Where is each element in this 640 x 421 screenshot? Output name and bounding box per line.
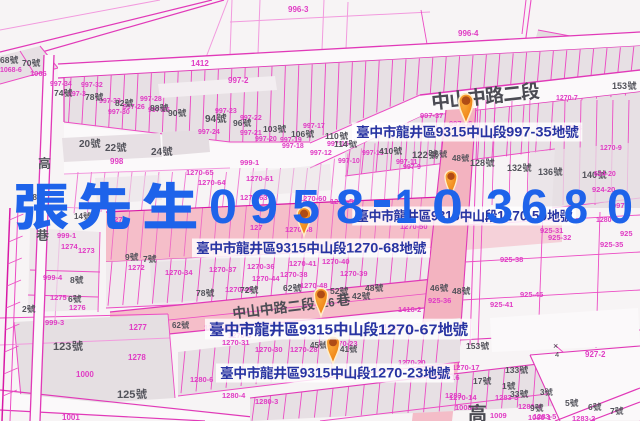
svg-text:1270-37: 1270-37 bbox=[209, 265, 237, 274]
svg-text:925-32: 925-32 bbox=[548, 233, 571, 242]
svg-text:9: 9 bbox=[125, 252, 130, 262]
svg-text:1280-6: 1280-6 bbox=[190, 375, 213, 384]
svg-text:1: 1 bbox=[395, 181, 417, 234]
svg-text:996-3: 996-3 bbox=[288, 5, 309, 14]
svg-text:1270-65: 1270-65 bbox=[186, 168, 214, 177]
svg-text:33: 33 bbox=[510, 389, 520, 399]
svg-text:1270-34: 1270-34 bbox=[165, 268, 193, 277]
svg-text:997-9: 997-9 bbox=[403, 164, 421, 171]
svg-text:997-18: 997-18 bbox=[282, 143, 304, 150]
svg-text:94: 94 bbox=[205, 114, 217, 125]
svg-text:1000: 1000 bbox=[76, 370, 94, 379]
svg-text:68: 68 bbox=[0, 55, 10, 65]
svg-text:1277: 1277 bbox=[129, 323, 147, 332]
svg-text:927-2: 927-2 bbox=[585, 350, 606, 359]
svg-text:999-3: 999-3 bbox=[45, 318, 64, 327]
svg-text:72: 72 bbox=[240, 285, 250, 295]
svg-text:997-28: 997-28 bbox=[140, 96, 162, 103]
svg-text:82: 82 bbox=[115, 98, 125, 108]
svg-text:1416-2: 1416-2 bbox=[398, 305, 421, 314]
svg-text:1412: 1412 bbox=[191, 59, 209, 68]
svg-text:997-35: 997-35 bbox=[506, 125, 552, 140]
svg-text:1283-2: 1283-2 bbox=[572, 414, 595, 421]
svg-text:999-1: 999-1 bbox=[57, 231, 76, 240]
svg-text:1270-67: 1270-67 bbox=[378, 322, 438, 339]
svg-text:1270-39: 1270-39 bbox=[340, 269, 368, 278]
svg-text:925-38: 925-38 bbox=[500, 255, 523, 264]
svg-text:9: 9 bbox=[250, 181, 278, 234]
svg-text:153: 153 bbox=[466, 341, 480, 351]
svg-text:128: 128 bbox=[470, 158, 485, 168]
svg-text:997-10: 997-10 bbox=[338, 158, 360, 165]
svg-text:103: 103 bbox=[263, 124, 277, 134]
svg-text:62: 62 bbox=[283, 283, 293, 293]
svg-text:925-45: 925-45 bbox=[520, 290, 543, 299]
svg-text:1278: 1278 bbox=[128, 353, 146, 362]
svg-text:123: 123 bbox=[53, 341, 71, 353]
svg-text:1066: 1066 bbox=[30, 69, 47, 78]
svg-text:136: 136 bbox=[538, 167, 553, 177]
svg-text:8: 8 bbox=[70, 275, 75, 285]
svg-text:4: 4 bbox=[555, 350, 559, 359]
svg-text:9315: 9315 bbox=[276, 241, 307, 256]
svg-text:9315: 9315 bbox=[436, 125, 467, 140]
svg-text:1280-4: 1280-4 bbox=[222, 391, 246, 400]
svg-text:624-20: 624-20 bbox=[594, 171, 616, 178]
svg-text:1270-17: 1270-17 bbox=[452, 363, 480, 372]
svg-text:48: 48 bbox=[452, 286, 462, 296]
svg-text:1270-41: 1270-41 bbox=[289, 259, 317, 268]
svg-text:9315: 9315 bbox=[300, 366, 331, 381]
svg-text:925-41: 925-41 bbox=[490, 300, 513, 309]
svg-text:46: 46 bbox=[430, 283, 440, 293]
svg-text:0: 0 bbox=[209, 181, 237, 234]
svg-text:1270-44: 1270-44 bbox=[252, 274, 280, 283]
svg-text:1270-14: 1270-14 bbox=[449, 393, 477, 402]
svg-text:410: 410 bbox=[379, 146, 393, 156]
svg-text:8: 8 bbox=[336, 181, 364, 234]
svg-text:6: 6 bbox=[588, 402, 593, 412]
svg-text:1270-40: 1270-40 bbox=[322, 257, 350, 266]
svg-text:996-4: 996-4 bbox=[458, 29, 479, 38]
svg-text:1276: 1276 bbox=[69, 303, 86, 312]
svg-text:8: 8 bbox=[564, 181, 588, 234]
svg-text:7: 7 bbox=[610, 406, 615, 416]
svg-text:1068-6: 1068-6 bbox=[0, 67, 22, 74]
svg-text:125: 125 bbox=[117, 389, 135, 401]
svg-text:96: 96 bbox=[233, 118, 243, 128]
svg-text:1009: 1009 bbox=[490, 411, 507, 420]
svg-text:42: 42 bbox=[352, 291, 362, 301]
svg-text:17: 17 bbox=[473, 376, 483, 386]
svg-text:5: 5 bbox=[292, 181, 320, 234]
svg-text:62: 62 bbox=[172, 321, 181, 330]
svg-text:0: 0 bbox=[432, 181, 463, 234]
svg-text:114: 114 bbox=[334, 139, 348, 149]
svg-text:3: 3 bbox=[540, 388, 545, 397]
svg-text:46: 46 bbox=[430, 150, 439, 159]
svg-text:925-36: 925-36 bbox=[428, 296, 451, 305]
svg-text:153: 153 bbox=[612, 81, 627, 91]
svg-text:997-17: 997-17 bbox=[303, 123, 325, 130]
svg-text:1270-9: 1270-9 bbox=[600, 145, 622, 152]
svg-text:20: 20 bbox=[79, 139, 91, 150]
svg-text:997-2: 997-2 bbox=[228, 76, 249, 85]
svg-text:133: 133 bbox=[505, 365, 519, 375]
svg-text:70: 70 bbox=[22, 58, 32, 68]
svg-text:88: 88 bbox=[150, 103, 160, 113]
svg-text:9: 9 bbox=[530, 403, 535, 413]
svg-text:1: 1 bbox=[502, 381, 507, 391]
svg-text:997-20: 997-20 bbox=[255, 136, 277, 143]
svg-text:997-32: 997-32 bbox=[81, 82, 103, 89]
svg-text:999-1: 999-1 bbox=[240, 158, 259, 167]
svg-text:998: 998 bbox=[110, 157, 124, 166]
svg-text:14: 14 bbox=[74, 212, 83, 221]
svg-text:132: 132 bbox=[507, 163, 522, 173]
svg-text:45: 45 bbox=[310, 341, 319, 350]
svg-text:106: 106 bbox=[291, 129, 305, 139]
svg-text:1270-36: 1270-36 bbox=[247, 262, 275, 271]
svg-text:78: 78 bbox=[196, 288, 206, 298]
svg-text:2: 2 bbox=[22, 304, 27, 314]
svg-text:925-35: 925-35 bbox=[600, 240, 623, 249]
svg-text:9315: 9315 bbox=[299, 322, 333, 339]
svg-text:997-30: 997-30 bbox=[108, 109, 130, 116]
svg-text:5: 5 bbox=[565, 398, 570, 408]
svg-text:24: 24 bbox=[151, 147, 163, 158]
svg-text:1275: 1275 bbox=[50, 293, 67, 302]
svg-text:0: 0 bbox=[607, 181, 633, 234]
svg-text:1270-38: 1270-38 bbox=[280, 270, 308, 279]
svg-text:997-24: 997-24 bbox=[198, 129, 220, 136]
svg-text:1270-68: 1270-68 bbox=[346, 241, 400, 256]
svg-text:48: 48 bbox=[365, 283, 375, 293]
svg-text:90: 90 bbox=[168, 108, 178, 118]
svg-text:1272: 1272 bbox=[128, 263, 145, 272]
svg-text:74: 74 bbox=[54, 88, 64, 98]
svg-text:122: 122 bbox=[412, 150, 428, 161]
svg-text:1001: 1001 bbox=[62, 413, 80, 421]
svg-text:1274: 1274 bbox=[61, 242, 79, 251]
svg-text:1273: 1273 bbox=[78, 246, 95, 255]
svg-text:999-4: 999-4 bbox=[43, 273, 63, 282]
svg-text:1270-23: 1270-23 bbox=[370, 366, 424, 381]
svg-text:48: 48 bbox=[452, 154, 461, 163]
svg-text:78: 78 bbox=[85, 92, 95, 102]
svg-text:997-12: 997-12 bbox=[310, 150, 332, 157]
svg-text:1000-1: 1000-1 bbox=[528, 413, 551, 421]
svg-text:997-37: 997-37 bbox=[420, 111, 443, 120]
svg-text:1280-3: 1280-3 bbox=[255, 397, 278, 406]
svg-text:1270-30: 1270-30 bbox=[255, 345, 283, 354]
svg-text:997-34: 997-34 bbox=[50, 81, 72, 88]
svg-text:6: 6 bbox=[521, 181, 548, 234]
svg-text:41: 41 bbox=[340, 345, 349, 354]
svg-text:1270-7: 1270-7 bbox=[556, 95, 578, 102]
svg-text:3: 3 bbox=[486, 181, 513, 234]
svg-text:22: 22 bbox=[105, 143, 117, 154]
